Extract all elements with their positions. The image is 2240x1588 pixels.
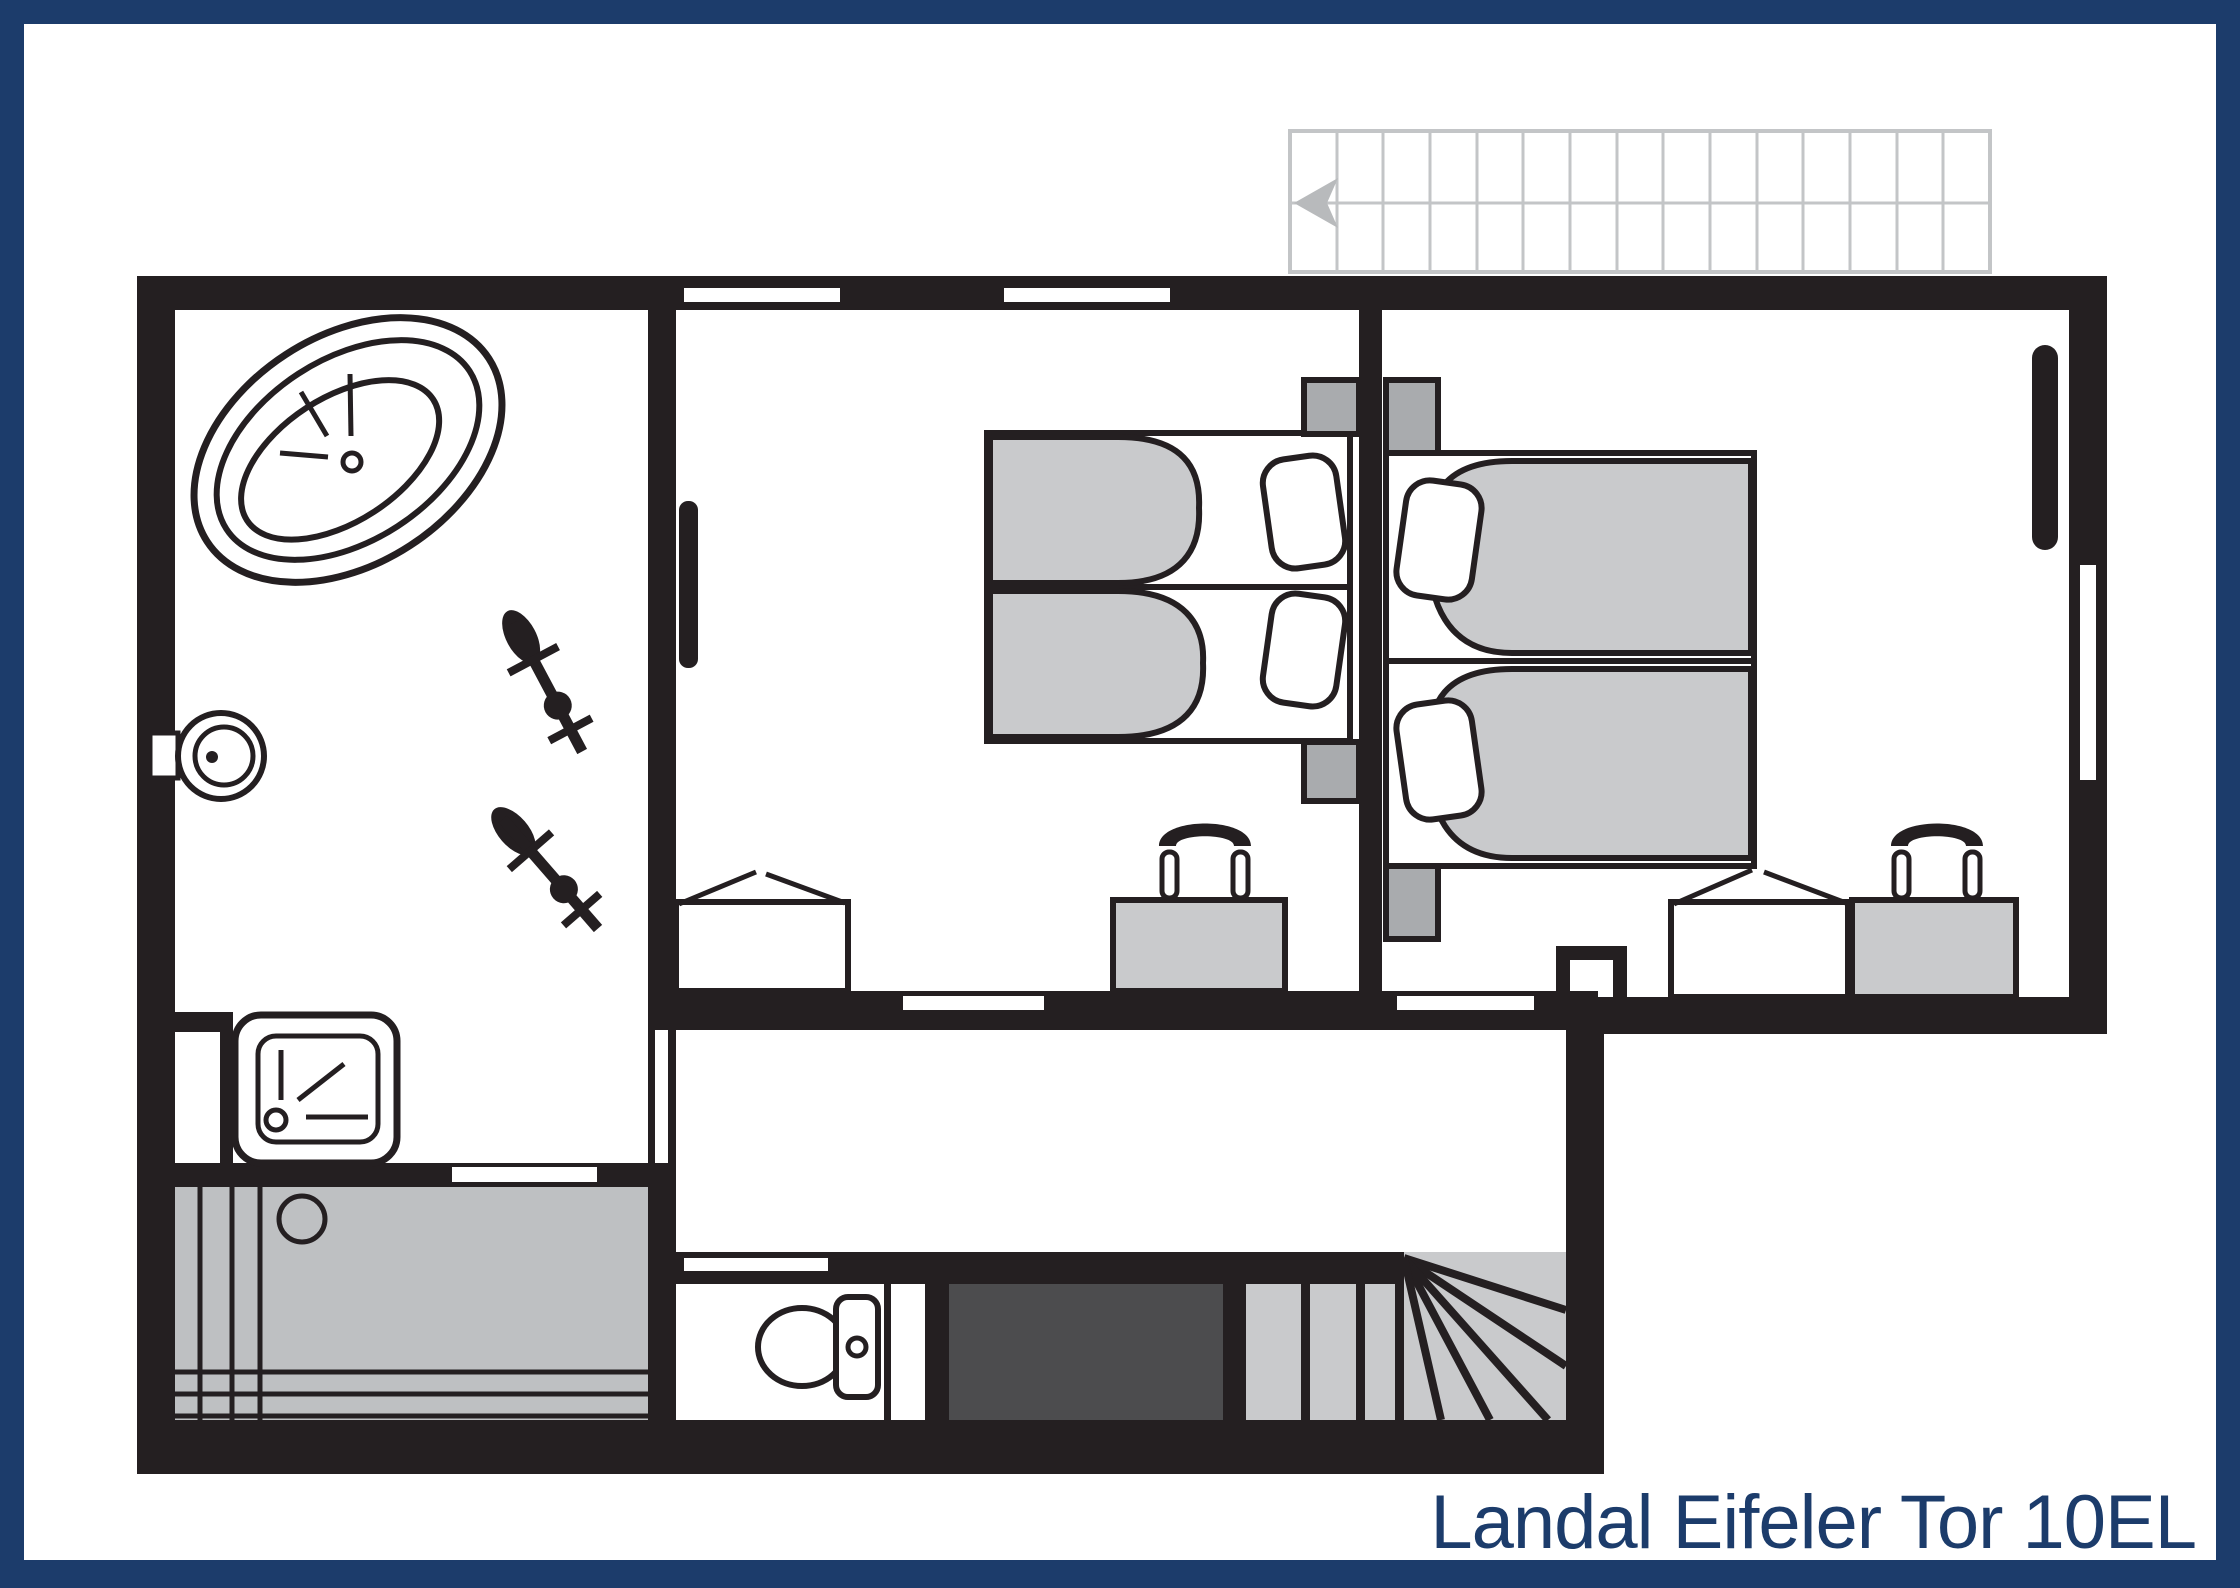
window-right-bedroom bbox=[2080, 565, 2096, 780]
nightstand bbox=[1386, 380, 1438, 453]
pillow bbox=[1260, 590, 1349, 709]
wall-bottom bbox=[137, 1420, 1604, 1474]
plan-title: Landal Eifeler Tor 10EL bbox=[1430, 1480, 2196, 1565]
door-left-bedroom bbox=[903, 996, 1044, 1010]
floor-plan-page: Landal Eifeler Tor 10EL bbox=[0, 0, 2240, 1588]
wall-bottom-right-section bbox=[1598, 997, 2107, 1034]
wall-shower-stub-vertical bbox=[220, 1012, 233, 1163]
upper-floor-staircase-icon bbox=[1290, 131, 1990, 272]
door-frame-post-right bbox=[1613, 946, 1627, 997]
wall-radiator-icon bbox=[679, 501, 698, 668]
wall-wc-thin bbox=[884, 1284, 891, 1420]
terrace bbox=[175, 1187, 648, 1420]
nightstand bbox=[1304, 742, 1359, 801]
duvet bbox=[990, 437, 1199, 583]
twin-beds bbox=[1386, 453, 1754, 866]
twin-beds bbox=[987, 433, 1350, 741]
nightstand bbox=[1386, 866, 1438, 939]
wall-mat-stairs-divider bbox=[1223, 1284, 1246, 1420]
door-right-bedroom bbox=[1397, 996, 1534, 1010]
opening-bathroom-bottom bbox=[452, 1167, 597, 1182]
duvet bbox=[990, 591, 1203, 737]
pillow bbox=[1393, 477, 1484, 602]
door-bathroom bbox=[655, 1030, 668, 1163]
pillow bbox=[1393, 697, 1484, 822]
wall-between-bedrooms bbox=[1359, 310, 1382, 991]
shower-icon bbox=[235, 1015, 397, 1163]
nightstand bbox=[1304, 380, 1359, 434]
window-top-left-bedroom bbox=[684, 288, 840, 302]
window-top-left-bedroom-2 bbox=[1004, 288, 1170, 302]
doormat bbox=[949, 1284, 1223, 1420]
wall-wc-right bbox=[925, 1284, 949, 1420]
terrace-floor bbox=[175, 1187, 648, 1420]
wall-terrace-right bbox=[648, 1187, 676, 1420]
wall-radiator-icon bbox=[2032, 345, 2058, 550]
door-wc bbox=[684, 1258, 828, 1271]
desk bbox=[1852, 900, 2016, 997]
floor-plan-drawing: Landal Eifeler Tor 10EL bbox=[0, 0, 2240, 1588]
toilet-icon bbox=[758, 1297, 878, 1397]
pillow bbox=[1260, 452, 1349, 571]
desk bbox=[1113, 900, 1285, 991]
wall-stairwell-right bbox=[1566, 997, 1604, 1474]
wall-left bbox=[137, 276, 175, 1474]
